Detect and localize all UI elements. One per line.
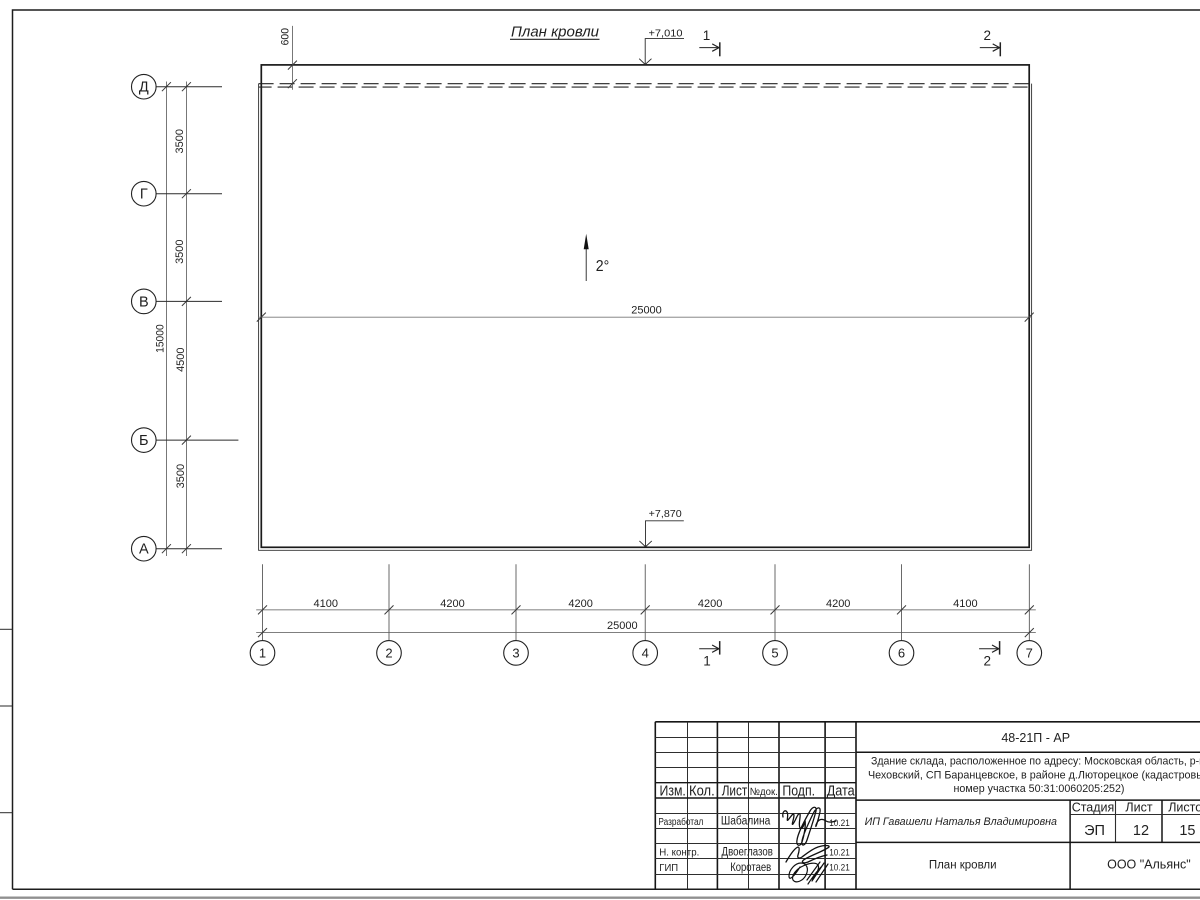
svg-text:3500: 3500	[175, 464, 187, 488]
svg-text:15: 15	[1179, 823, 1195, 839]
svg-text:3: 3	[512, 645, 519, 660]
svg-text:Лист: Лист	[1125, 800, 1152, 814]
svg-text:25000: 25000	[631, 305, 662, 317]
svg-text:План кровли: План кровли	[511, 24, 600, 41]
svg-text:6: 6	[898, 645, 905, 660]
svg-text:номер участка 50:31:0060205:25: номер участка 50:31:0060205:252)	[954, 783, 1125, 795]
svg-text:2°: 2°	[596, 258, 610, 275]
svg-text:4200: 4200	[826, 598, 850, 610]
svg-text:10.21: 10.21	[829, 863, 850, 874]
svg-text:Шабалина: Шабалина	[721, 816, 771, 828]
svg-text:Чеховский, СП Баранцевское, в: Чеховский, СП Баранцевское, в районе д.Л…	[868, 769, 1200, 781]
svg-text:Листов: Листов	[1168, 800, 1200, 814]
svg-text:1: 1	[703, 654, 711, 669]
svg-text:4200: 4200	[698, 598, 722, 610]
svg-text:Б: Б	[139, 433, 149, 449]
svg-text:4500: 4500	[175, 347, 187, 371]
svg-text:15000: 15000	[155, 324, 167, 353]
svg-text:4200: 4200	[440, 598, 464, 610]
svg-text:Разработал: Разработал	[658, 816, 703, 828]
svg-text:Здание склада, расположенное п: Здание склада, расположенное по адресу: …	[871, 756, 1200, 768]
svg-text:ИП Гавашели Наталья Владимиров: ИП Гавашели Наталья Владимировна	[865, 816, 1057, 828]
svg-text:600: 600	[280, 28, 292, 45]
svg-text:Стадия: Стадия	[1072, 800, 1115, 814]
svg-text:№док.: №док.	[750, 786, 778, 798]
svg-text:4200: 4200	[568, 598, 592, 610]
svg-text:4100: 4100	[953, 598, 977, 610]
svg-text:48-21П - АР: 48-21П - АР	[1001, 731, 1070, 745]
svg-text:2: 2	[984, 654, 992, 669]
svg-text:В: В	[139, 294, 149, 310]
svg-text:2: 2	[984, 28, 992, 43]
svg-text:10.21: 10.21	[829, 818, 850, 829]
svg-text:План кровли: План кровли	[929, 859, 997, 871]
svg-text:12: 12	[1133, 823, 1149, 839]
svg-text:4: 4	[642, 645, 649, 660]
svg-text:25000: 25000	[607, 620, 638, 632]
svg-text:1: 1	[259, 645, 266, 660]
svg-text:А: А	[139, 542, 149, 558]
svg-text:4100: 4100	[314, 598, 338, 610]
svg-text:10.21: 10.21	[829, 847, 850, 858]
svg-text:3500: 3500	[174, 239, 186, 263]
svg-text:ООО "Альянс": ООО "Альянс"	[1107, 857, 1191, 871]
svg-text:Коротаев: Коротаев	[730, 862, 771, 874]
svg-text:+7,010: +7,010	[649, 28, 683, 39]
svg-text:+7,870: +7,870	[649, 509, 682, 520]
svg-text:Г: Г	[140, 187, 148, 203]
svg-text:Изм.: Изм.	[660, 782, 686, 799]
svg-text:1: 1	[703, 28, 711, 43]
svg-text:ГИП: ГИП	[659, 863, 678, 874]
svg-text:2: 2	[385, 645, 392, 660]
svg-text:Д: Д	[139, 80, 149, 96]
svg-text:7: 7	[1026, 645, 1033, 660]
svg-text:Дата: Дата	[827, 782, 856, 799]
svg-text:Лист: Лист	[722, 782, 748, 799]
svg-text:Кол.: Кол.	[689, 782, 715, 799]
svg-text:Подп.: Подп.	[782, 782, 815, 799]
svg-text:Двоеглазов: Двоеглазов	[722, 847, 773, 859]
svg-text:5: 5	[771, 645, 778, 660]
svg-text:3500: 3500	[174, 129, 186, 153]
svg-text:Н. контр.: Н. контр.	[659, 848, 699, 859]
svg-text:ЭП: ЭП	[1084, 823, 1105, 839]
